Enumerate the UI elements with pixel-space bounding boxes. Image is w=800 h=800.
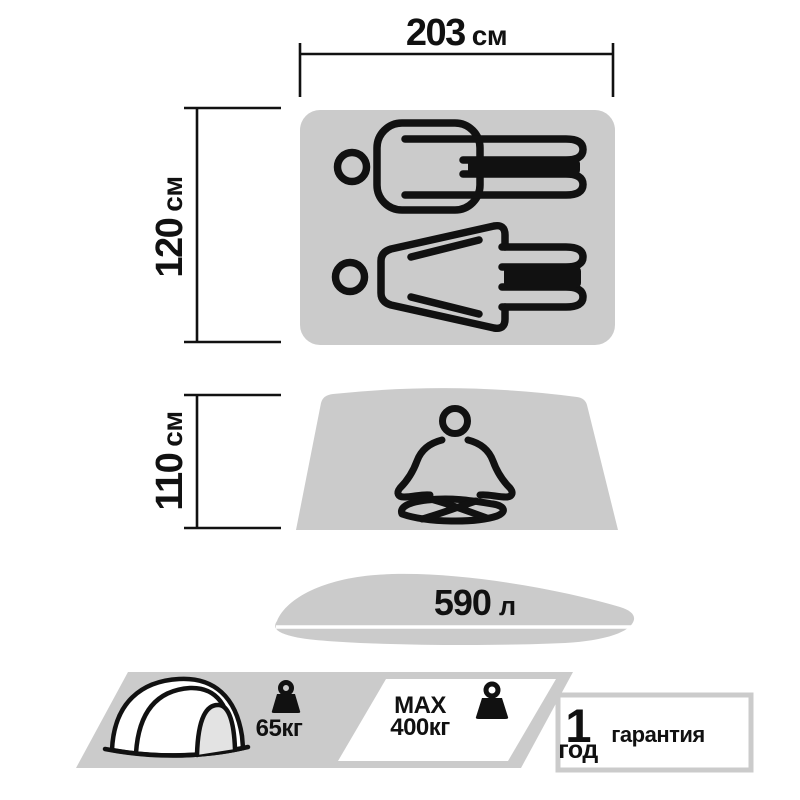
diagram-graphics	[0, 0, 800, 800]
max-load-line2: 400кг	[390, 717, 450, 739]
height-label-110: 110 см	[151, 391, 191, 531]
width-value: 203	[406, 14, 465, 52]
height-unit-120: см	[159, 176, 187, 211]
tent-weight-label: 65кг	[234, 717, 324, 741]
height-value-120: 120	[151, 219, 189, 278]
width-unit: см	[472, 22, 507, 50]
warranty-period-value: год	[558, 740, 597, 760]
tent-weight-value: 65кг	[256, 717, 303, 741]
height-label-120: 120 см	[151, 157, 191, 297]
volume-label: 590 л	[325, 585, 625, 621]
height-dimension-line-120	[184, 108, 281, 342]
warranty-label: гарантия	[600, 725, 716, 745]
warranty-period: год	[552, 740, 604, 760]
volume-unit: л	[499, 593, 516, 620]
warranty-label-value: гарантия	[611, 725, 705, 745]
width-label: 203 см	[300, 14, 613, 52]
height-value-110: 110	[151, 454, 189, 511]
tent-dimensions-infographic: 203 см 120 см 110 см 590 л 65кг MAX 400к…	[0, 0, 800, 800]
height-unit-110: см	[159, 411, 187, 446]
max-load-label: MAX 400кг	[366, 695, 474, 739]
volume-value: 590	[434, 585, 491, 621]
height-dimension-line-110	[184, 395, 281, 528]
